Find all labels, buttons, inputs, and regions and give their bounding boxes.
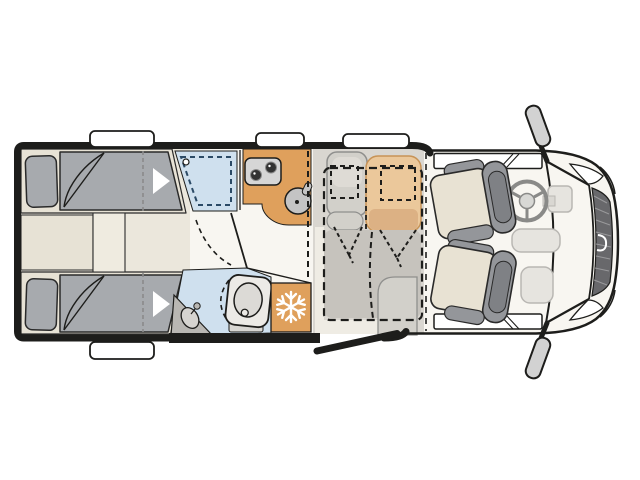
toilet <box>225 274 273 328</box>
pillow <box>25 155 58 207</box>
shower-drain-icon <box>183 159 189 165</box>
side-seat-cushion <box>369 209 418 230</box>
mirror-head-top <box>524 104 552 149</box>
window-bedroom-bottom <box>90 342 154 359</box>
wheel-hub <box>520 194 535 209</box>
two-burner-stove <box>245 158 281 185</box>
glovebox <box>521 267 553 303</box>
single-bed-top <box>21 149 186 213</box>
window-kitchen <box>256 133 304 147</box>
step-cabinet <box>93 213 125 272</box>
bench-cushion <box>332 157 362 187</box>
center-cabinets <box>21 213 125 272</box>
sink-drain-icon <box>295 200 299 204</box>
pillow <box>25 278 58 330</box>
entry-door-open <box>317 334 397 352</box>
center-console <box>512 229 560 252</box>
entry-step-seat <box>378 277 417 335</box>
single-bed-bottom <box>21 272 186 334</box>
cab <box>404 151 618 334</box>
bedside-cabinet <box>21 215 93 270</box>
floorplan-stage: Motorhome floor plan, top view <box>0 0 640 480</box>
motorhome-floorplan: Motorhome floor plan, top view <box>0 0 640 480</box>
window-bedroom-top <box>90 131 154 147</box>
vanity-faucet-icon <box>194 303 200 309</box>
bench-armrest <box>327 212 363 230</box>
toilet-room <box>170 268 272 337</box>
dinette <box>315 152 422 335</box>
toilet-flush-icon <box>241 309 249 317</box>
window-dinette <box>343 134 409 148</box>
fridge-freezer <box>271 283 311 332</box>
mirror-head-bottom <box>524 336 552 381</box>
